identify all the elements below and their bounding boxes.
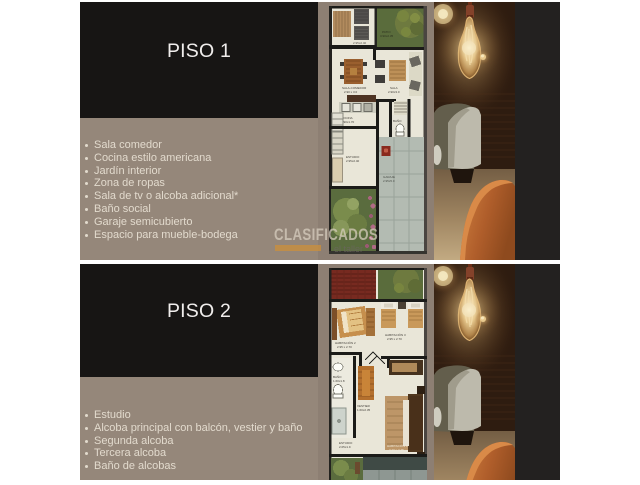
svg-text:2.95x2.40: 2.95x2.40 bbox=[353, 41, 367, 45]
svg-text:2.95 x 2.70: 2.95 x 2.70 bbox=[337, 345, 352, 349]
svg-text:BAÑO: BAÑO bbox=[393, 118, 402, 123]
svg-text:1.60x2.35: 1.60x2.35 bbox=[357, 408, 371, 412]
svg-text:3.20 x 3.45: 3.20 x 3.45 bbox=[389, 448, 404, 452]
svg-text:2.95 x 2.70: 2.95 x 2.70 bbox=[387, 337, 402, 341]
svg-text:3.90x2.35: 3.90x2.35 bbox=[380, 34, 394, 38]
svg-text:2.95x2.40: 2.95x2.40 bbox=[346, 159, 360, 163]
svg-text:1.60x1.8: 1.60x1.8 bbox=[333, 379, 345, 383]
svg-text:2.90 x 3.0: 2.90 x 3.0 bbox=[344, 90, 358, 94]
svg-text:2.90x3.0: 2.90x3.0 bbox=[388, 90, 400, 94]
svg-text:2.05x1.9: 2.05x1.9 bbox=[339, 445, 351, 449]
svg-text:2.95x5.0: 2.95x5.0 bbox=[383, 179, 395, 183]
